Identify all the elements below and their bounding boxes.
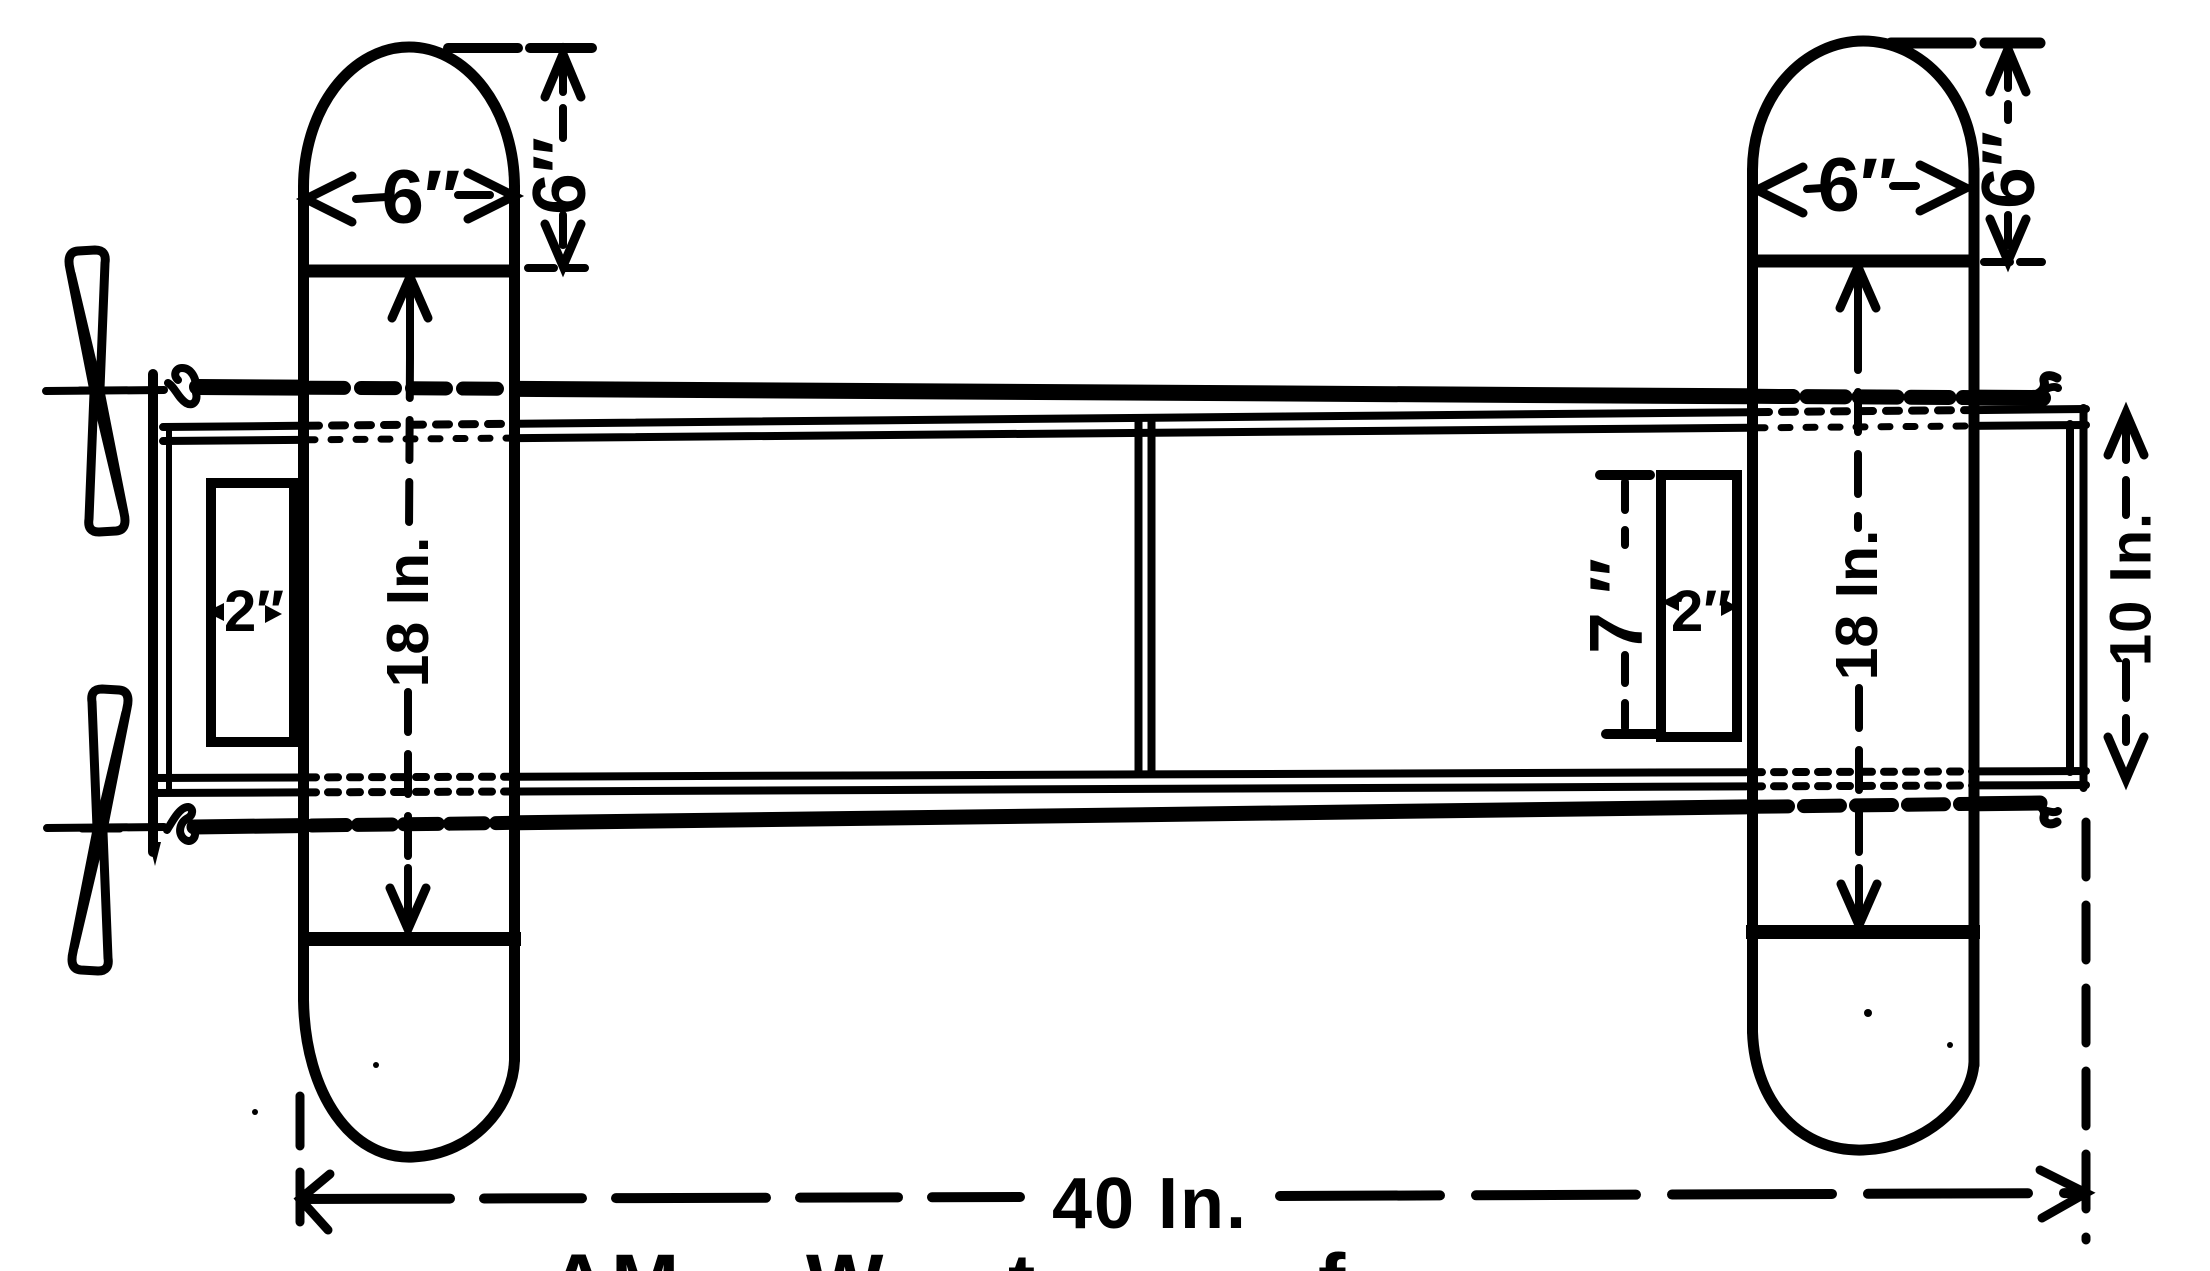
svg-text:7″: 7″ [1574, 540, 1658, 654]
svg-text:6″: 6″ [1818, 143, 1897, 228]
svg-text:t: t [1008, 1238, 1035, 1271]
svg-text:6″: 6″ [517, 137, 601, 215]
svg-text:10 In.: 10 In. [2099, 512, 2164, 666]
svg-text:18 In.: 18 In. [1824, 530, 1890, 681]
svg-text:2″: 2″ [1671, 579, 1731, 644]
svg-text:6″: 6″ [1966, 131, 2050, 209]
svg-text:18 In.: 18 In. [375, 537, 441, 688]
svg-text:f: f [1318, 1238, 1346, 1271]
svg-text:W: W [806, 1238, 884, 1271]
svg-text:M: M [611, 1238, 679, 1271]
svg-text:A: A [549, 1238, 608, 1271]
svg-text:40 In.: 40 In. [1052, 1164, 1248, 1244]
svg-text:6″: 6″ [382, 155, 461, 240]
svg-text:2″: 2″ [224, 579, 284, 644]
